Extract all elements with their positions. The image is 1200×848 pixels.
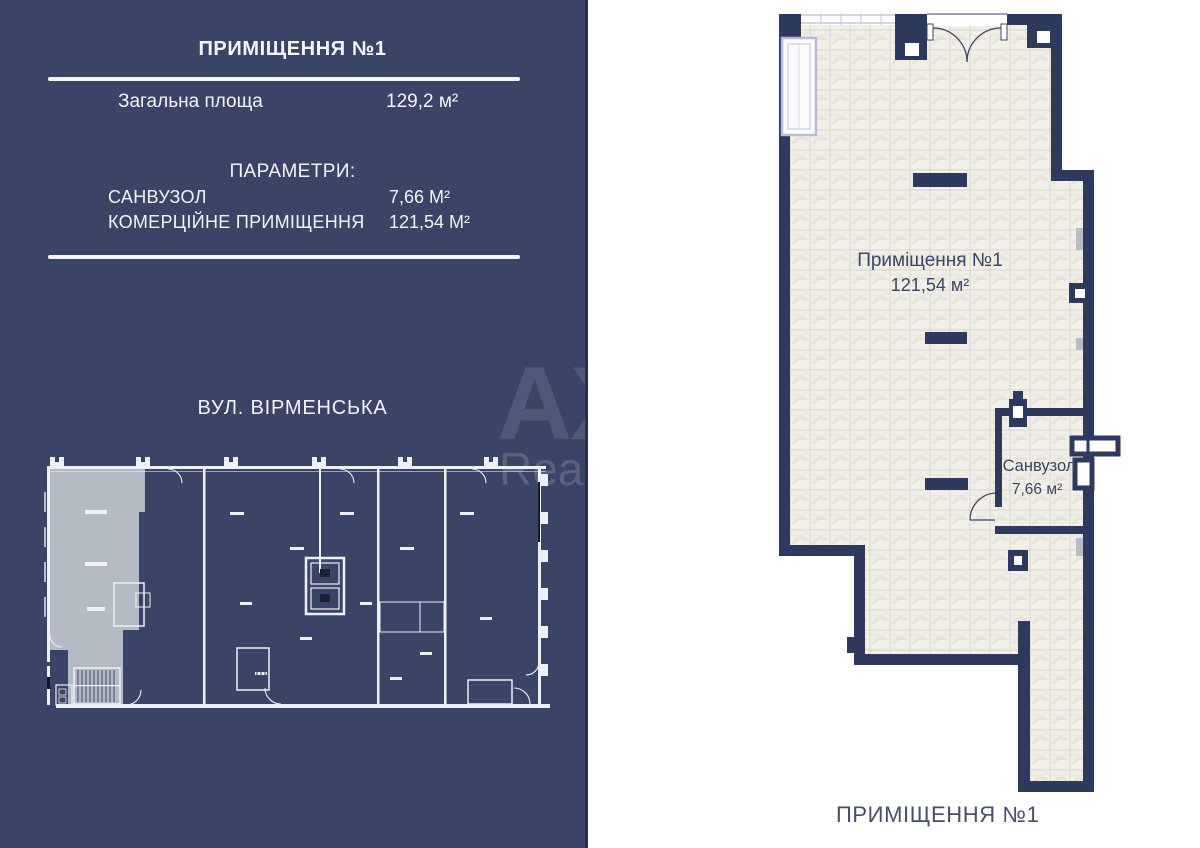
param-commercial-label: КОМЕРЦІЙНЕ ПРИМІЩЕННЯ	[108, 212, 365, 233]
page-title: ПРИМІЩЕННЯ №1	[0, 38, 585, 61]
total-area-value: 129,2 м²	[386, 91, 458, 113]
duct-shaft	[1072, 438, 1118, 488]
divider-line	[48, 77, 520, 81]
pier-inset	[1037, 31, 1050, 43]
pier-inset	[905, 43, 919, 56]
room1-label: Приміщення №1	[857, 250, 1003, 271]
highlighted-unit-shape	[50, 468, 145, 705]
building-overview-plan	[40, 452, 560, 740]
info-panel: ПРИМІЩЕННЯ №1 Загальна площа 129,2 м² ПА…	[0, 0, 588, 848]
left-window	[782, 38, 816, 135]
parameters-heading: ПАРАМЕТРИ:	[0, 161, 585, 183]
floor-tiles	[790, 25, 1083, 781]
floorplan-page: ПРИМІЩЕННЯ №1 Загальна площа 129,2 м² ПА…	[0, 0, 1200, 848]
divider-line	[48, 255, 520, 259]
total-area-label: Загальна площа	[118, 91, 263, 113]
room1-area: 121,54 м²	[891, 275, 969, 295]
plan-caption: ПРИМІЩЕННЯ №1	[836, 802, 1039, 828]
unit-floor-plan: Приміщення №1 121,54 м² Санвузол 7,66 м²	[770, 10, 1130, 800]
attached-column	[1069, 283, 1091, 303]
param-commercial-value: 121,54 М²	[389, 212, 470, 233]
param-bathroom-label: САНВУЗОЛ	[108, 187, 207, 208]
storefront-glazing	[801, 13, 895, 25]
bathroom-column-inset	[1013, 406, 1023, 418]
bathroom-area: 7,66 м²	[1012, 481, 1062, 498]
bathroom-label: Санвузол	[1003, 457, 1076, 475]
param-bathroom-value: 7,66 М²	[389, 187, 450, 208]
watermark-logo-text: AX	[497, 352, 588, 456]
free-column	[1008, 550, 1028, 571]
